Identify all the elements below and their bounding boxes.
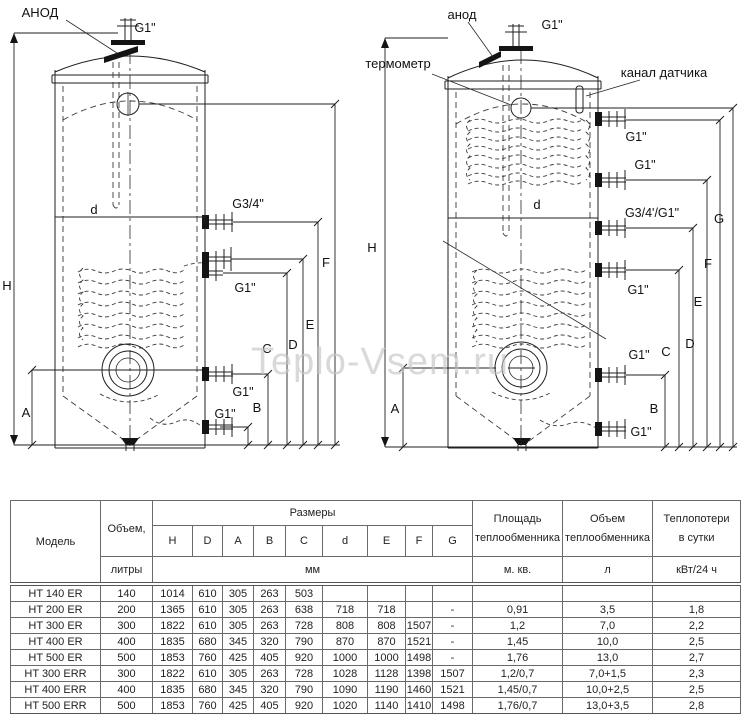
value-cell: 2,8 bbox=[653, 698, 741, 715]
value-cell: - bbox=[433, 602, 473, 618]
value-cell bbox=[653, 584, 741, 602]
datasheet-page: АНОД G1" d G3/4" G1" G1" G1" H A B C D E… bbox=[0, 0, 750, 715]
dim-E-left: E bbox=[306, 317, 315, 332]
unit-dimensions: мм bbox=[153, 557, 473, 585]
value-cell: 1000 bbox=[323, 650, 368, 666]
drain-stub bbox=[513, 438, 531, 445]
table-row: HT 400 ER40018356803453207908708701521-1… bbox=[11, 634, 741, 650]
right-g1-r4-label: G1" bbox=[628, 348, 649, 362]
left-g34-label: G3/4" bbox=[232, 197, 264, 211]
header-heat-loss-line2: в сутки bbox=[653, 532, 740, 545]
value-cell: 13,0 bbox=[563, 650, 653, 666]
value-cell: 1398 bbox=[406, 666, 433, 682]
value-cell: 728 bbox=[286, 666, 323, 682]
anode-leader bbox=[66, 20, 117, 53]
value-cell: 263 bbox=[254, 666, 286, 682]
fitting-g34 bbox=[202, 212, 233, 232]
value-cell: 718 bbox=[323, 602, 368, 618]
sensor-leader bbox=[586, 80, 640, 96]
left-tank-drawing: АНОД G1" d G3/4" G1" G1" G1" H A B C D E… bbox=[2, 5, 340, 451]
left-g1-mid-label: G1" bbox=[234, 281, 255, 295]
left-g1-top-label: G1" bbox=[134, 21, 155, 35]
model-cell: HT 300 ER bbox=[11, 618, 101, 634]
dim-A-left: A bbox=[22, 405, 31, 420]
value-cell: 10,0 bbox=[563, 634, 653, 650]
header-heat-loss: Теплопотери в сутки bbox=[653, 501, 741, 557]
technical-diagram: АНОД G1" d G3/4" G1" G1" G1" H A B C D E… bbox=[0, 0, 750, 497]
value-cell: 305 bbox=[223, 618, 254, 634]
model-cell: HT 140 ER bbox=[11, 584, 101, 602]
model-cell: HT 300 ERR bbox=[11, 666, 101, 682]
dim-C-right: C bbox=[661, 344, 670, 359]
model-cell: HT 400 ERR bbox=[11, 682, 101, 698]
value-cell: 1,2 bbox=[473, 618, 563, 634]
table-row: HT 200 ER2001365610305263638718718-0,913… bbox=[11, 602, 741, 618]
unit-heat-loss: кВт/24 ч bbox=[653, 557, 741, 585]
value-cell bbox=[368, 584, 406, 602]
sensor-channel bbox=[576, 86, 583, 113]
value-cell: 305 bbox=[223, 584, 254, 602]
dim-G-right: G bbox=[714, 211, 724, 226]
value-cell: 400 bbox=[101, 682, 153, 698]
dim-H-left: H bbox=[2, 278, 11, 293]
value-cell: 1498 bbox=[406, 650, 433, 666]
value-cell: 503 bbox=[286, 584, 323, 602]
value-cell: 500 bbox=[101, 650, 153, 666]
right-g1-r3-label: G1" bbox=[627, 283, 648, 297]
dim-E-right: E bbox=[694, 294, 703, 309]
right-g1-top-label: G1" bbox=[541, 18, 562, 32]
header-dim-G: G bbox=[433, 526, 473, 557]
header-dimensions: Размеры bbox=[153, 501, 473, 526]
value-cell: 680 bbox=[193, 634, 223, 650]
value-cell: 1,8 bbox=[653, 602, 741, 618]
value-cell: 2,2 bbox=[653, 618, 741, 634]
value-cell bbox=[406, 584, 433, 602]
value-cell: 2,3 bbox=[653, 666, 741, 682]
value-cell: 1014 bbox=[153, 584, 193, 602]
value-cell: 2,5 bbox=[653, 634, 741, 650]
value-cell bbox=[473, 584, 563, 602]
value-cell: 1521 bbox=[433, 682, 473, 698]
unit-hx-volume: л bbox=[563, 557, 653, 585]
model-cell: HT 200 ER bbox=[11, 602, 101, 618]
left-g1-drain-label: G1" bbox=[214, 407, 235, 421]
anode-leader bbox=[468, 22, 493, 57]
value-cell: 1498 bbox=[433, 698, 473, 715]
value-cell: 2,5 bbox=[653, 682, 741, 698]
table-row: HT 500 ERR500185376042540592010201140141… bbox=[11, 698, 741, 715]
value-cell: 610 bbox=[193, 584, 223, 602]
header-dim-H: H bbox=[153, 526, 193, 557]
thermometer-label: термометр bbox=[365, 56, 430, 71]
value-cell: 425 bbox=[223, 650, 254, 666]
value-cell: 680 bbox=[193, 682, 223, 698]
dim-F-right: F bbox=[704, 256, 712, 271]
value-cell: 2,7 bbox=[653, 650, 741, 666]
value-cell: 1,2/0,7 bbox=[473, 666, 563, 682]
left-g1-low-label: G1" bbox=[232, 385, 253, 399]
value-cell: 305 bbox=[223, 602, 254, 618]
dim-B-right: B bbox=[650, 401, 659, 416]
header-volume: Объем, bbox=[101, 501, 153, 557]
header-dim-D: D bbox=[193, 526, 223, 557]
right-anode-label: анод bbox=[448, 7, 477, 22]
value-cell: 870 bbox=[368, 634, 406, 650]
fitting-g1-r1 bbox=[595, 109, 626, 129]
anode-flange bbox=[104, 46, 138, 63]
value-cell: 920 bbox=[286, 698, 323, 715]
value-cell: 400 bbox=[101, 634, 153, 650]
fitting-g1-drain bbox=[595, 419, 626, 439]
value-cell: 808 bbox=[323, 618, 368, 634]
value-cell: 1128 bbox=[368, 666, 406, 682]
value-cell: 1460 bbox=[406, 682, 433, 698]
fitting-g34-g1 bbox=[595, 218, 626, 238]
value-cell: 305 bbox=[223, 666, 254, 682]
value-cell: 610 bbox=[193, 602, 223, 618]
spec-table-header: Модель Объем, Размеры Площадь теплообмен… bbox=[11, 501, 741, 585]
dim-D-right: D bbox=[685, 336, 694, 351]
header-hx-area-line1: Площадь bbox=[473, 513, 562, 526]
value-cell: 10,0+2,5 bbox=[563, 682, 653, 698]
section-line bbox=[443, 241, 606, 339]
header-dim-d: d bbox=[323, 526, 368, 557]
value-cell: 263 bbox=[254, 602, 286, 618]
header-model: Модель bbox=[11, 501, 101, 585]
value-cell: 1,45/0,7 bbox=[473, 682, 563, 698]
fitting-g1-low bbox=[202, 364, 233, 384]
model-cell: HT 400 ER bbox=[11, 634, 101, 650]
right-d-label: d bbox=[533, 197, 540, 212]
value-cell: 0,91 bbox=[473, 602, 563, 618]
value-cell: 1835 bbox=[153, 682, 193, 698]
spec-table-body: HT 140 ER1401014610305263503HT 200 ER200… bbox=[11, 584, 741, 715]
value-cell: 1,76/0,7 bbox=[473, 698, 563, 715]
value-cell: 7,0+1,5 bbox=[563, 666, 653, 682]
value-cell: 300 bbox=[101, 618, 153, 634]
upper-heat-exchanger-coil bbox=[467, 119, 590, 185]
value-cell: 3,5 bbox=[563, 602, 653, 618]
header-dim-F: F bbox=[406, 526, 433, 557]
value-cell: 1365 bbox=[153, 602, 193, 618]
value-cell: 1090 bbox=[323, 682, 368, 698]
table-row: HT 500 ER5001853760425405920100010001498… bbox=[11, 650, 741, 666]
value-cell: 920 bbox=[286, 650, 323, 666]
right-g34-g1-label: G3/4'/G1" bbox=[625, 206, 679, 220]
header-dim-B: B bbox=[254, 526, 286, 557]
value-cell: 320 bbox=[254, 634, 286, 650]
value-cell: 1,45 bbox=[473, 634, 563, 650]
header-dim-A: A bbox=[223, 526, 254, 557]
value-cell: 718 bbox=[368, 602, 406, 618]
table-row: HT 400 ERR400183568034532079010901190146… bbox=[11, 682, 741, 698]
value-cell: 1410 bbox=[406, 698, 433, 715]
fitting-g1-r2 bbox=[595, 170, 626, 190]
header-hx-area-line2: теплообменника bbox=[473, 532, 562, 545]
sensor-channel-label: канал датчика bbox=[621, 65, 708, 80]
value-cell: 760 bbox=[193, 650, 223, 666]
watermark: Teplo-Vsem.ru bbox=[251, 341, 509, 383]
value-cell: 808 bbox=[368, 618, 406, 634]
value-cell: 13,0+3,5 bbox=[563, 698, 653, 715]
value-cell: 1507 bbox=[433, 666, 473, 682]
table-row: HT 140 ER1401014610305263503 bbox=[11, 584, 741, 602]
spec-table: Модель Объем, Размеры Площадь теплообмен… bbox=[10, 500, 740, 715]
value-cell: 7,0 bbox=[563, 618, 653, 634]
right-g1-r2-label: G1" bbox=[634, 158, 655, 172]
value-cell: 1,76 bbox=[473, 650, 563, 666]
value-cell: 728 bbox=[286, 618, 323, 634]
value-cell: 263 bbox=[254, 584, 286, 602]
header-heat-loss-line1: Теплопотери bbox=[653, 513, 740, 526]
header-hx-volume: Объем теплообменника bbox=[563, 501, 653, 557]
value-cell bbox=[323, 584, 368, 602]
value-cell: 1853 bbox=[153, 650, 193, 666]
value-cell: 500 bbox=[101, 698, 153, 715]
dim-A-right: A bbox=[391, 401, 400, 416]
value-cell: 1000 bbox=[368, 650, 406, 666]
value-cell: 345 bbox=[223, 682, 254, 698]
value-cell: 1835 bbox=[153, 634, 193, 650]
tank-dome bbox=[448, 60, 598, 78]
fitting-g1-r4 bbox=[595, 365, 626, 385]
value-cell: 405 bbox=[254, 698, 286, 715]
value-cell: 405 bbox=[254, 650, 286, 666]
unit-volume: литры bbox=[101, 557, 153, 585]
right-g1-r1-label: G1" bbox=[625, 130, 646, 144]
value-cell: 1028 bbox=[323, 666, 368, 682]
unit-hx-area: м. кв. bbox=[473, 557, 563, 585]
value-cell: 638 bbox=[286, 602, 323, 618]
value-cell: 263 bbox=[254, 618, 286, 634]
value-cell: 790 bbox=[286, 682, 323, 698]
value-cell: 200 bbox=[101, 602, 153, 618]
dim-B-left: B bbox=[253, 400, 262, 415]
value-cell: 610 bbox=[193, 666, 223, 682]
value-cell: 1020 bbox=[323, 698, 368, 715]
value-cell: 1521 bbox=[406, 634, 433, 650]
fitting-g1-r3 bbox=[595, 260, 626, 280]
anode-flange bbox=[479, 51, 501, 68]
value-cell: - bbox=[433, 650, 473, 666]
header-dim-C: C bbox=[286, 526, 323, 557]
value-cell: 610 bbox=[193, 618, 223, 634]
header-hx-volume-line1: Объем bbox=[563, 513, 652, 526]
right-g1-drain-label: G1" bbox=[630, 425, 651, 439]
value-cell: - bbox=[433, 618, 473, 634]
top-pipe-fitting bbox=[499, 24, 533, 51]
value-cell: 1190 bbox=[368, 682, 406, 698]
value-cell: 790 bbox=[286, 634, 323, 650]
value-cell bbox=[563, 584, 653, 602]
header-hx-volume-line2: теплообменника bbox=[563, 532, 652, 545]
value-cell: 1507 bbox=[406, 618, 433, 634]
table-row: HT 300 ER30018226103052637288088081507-1… bbox=[11, 618, 741, 634]
dimension-lines-left bbox=[10, 33, 340, 449]
value-cell: 300 bbox=[101, 666, 153, 682]
dimension-lines-right bbox=[381, 38, 737, 451]
header-hx-area: Площадь теплообменника bbox=[473, 501, 563, 557]
left-anode-label: АНОД bbox=[22, 5, 59, 20]
value-cell: 1822 bbox=[153, 618, 193, 634]
value-cell: 140 bbox=[101, 584, 153, 602]
value-cell: 1822 bbox=[153, 666, 193, 682]
model-cell: HT 500 ER bbox=[11, 650, 101, 666]
right-tank-drawing: анод G1" термометр канал датчика G1" G1"… bbox=[365, 7, 737, 451]
value-cell: 1853 bbox=[153, 698, 193, 715]
value-cell: 1140 bbox=[368, 698, 406, 715]
dim-H-right: H bbox=[367, 240, 376, 255]
dim-F-left: F bbox=[322, 255, 330, 270]
value-cell: 320 bbox=[254, 682, 286, 698]
value-cell: - bbox=[433, 634, 473, 650]
model-cell: HT 500 ERR bbox=[11, 698, 101, 715]
value-cell bbox=[406, 602, 433, 618]
value-cell: 345 bbox=[223, 634, 254, 650]
header-dim-E: E bbox=[368, 526, 406, 557]
left-d-label: d bbox=[90, 202, 97, 217]
heat-exchanger-coil bbox=[78, 263, 204, 427]
value-cell: 425 bbox=[223, 698, 254, 715]
value-cell bbox=[433, 584, 473, 602]
table-row: HT 300 ERR300182261030526372810281128139… bbox=[11, 666, 741, 682]
value-cell: 870 bbox=[323, 634, 368, 650]
value-cell: 760 bbox=[193, 698, 223, 715]
